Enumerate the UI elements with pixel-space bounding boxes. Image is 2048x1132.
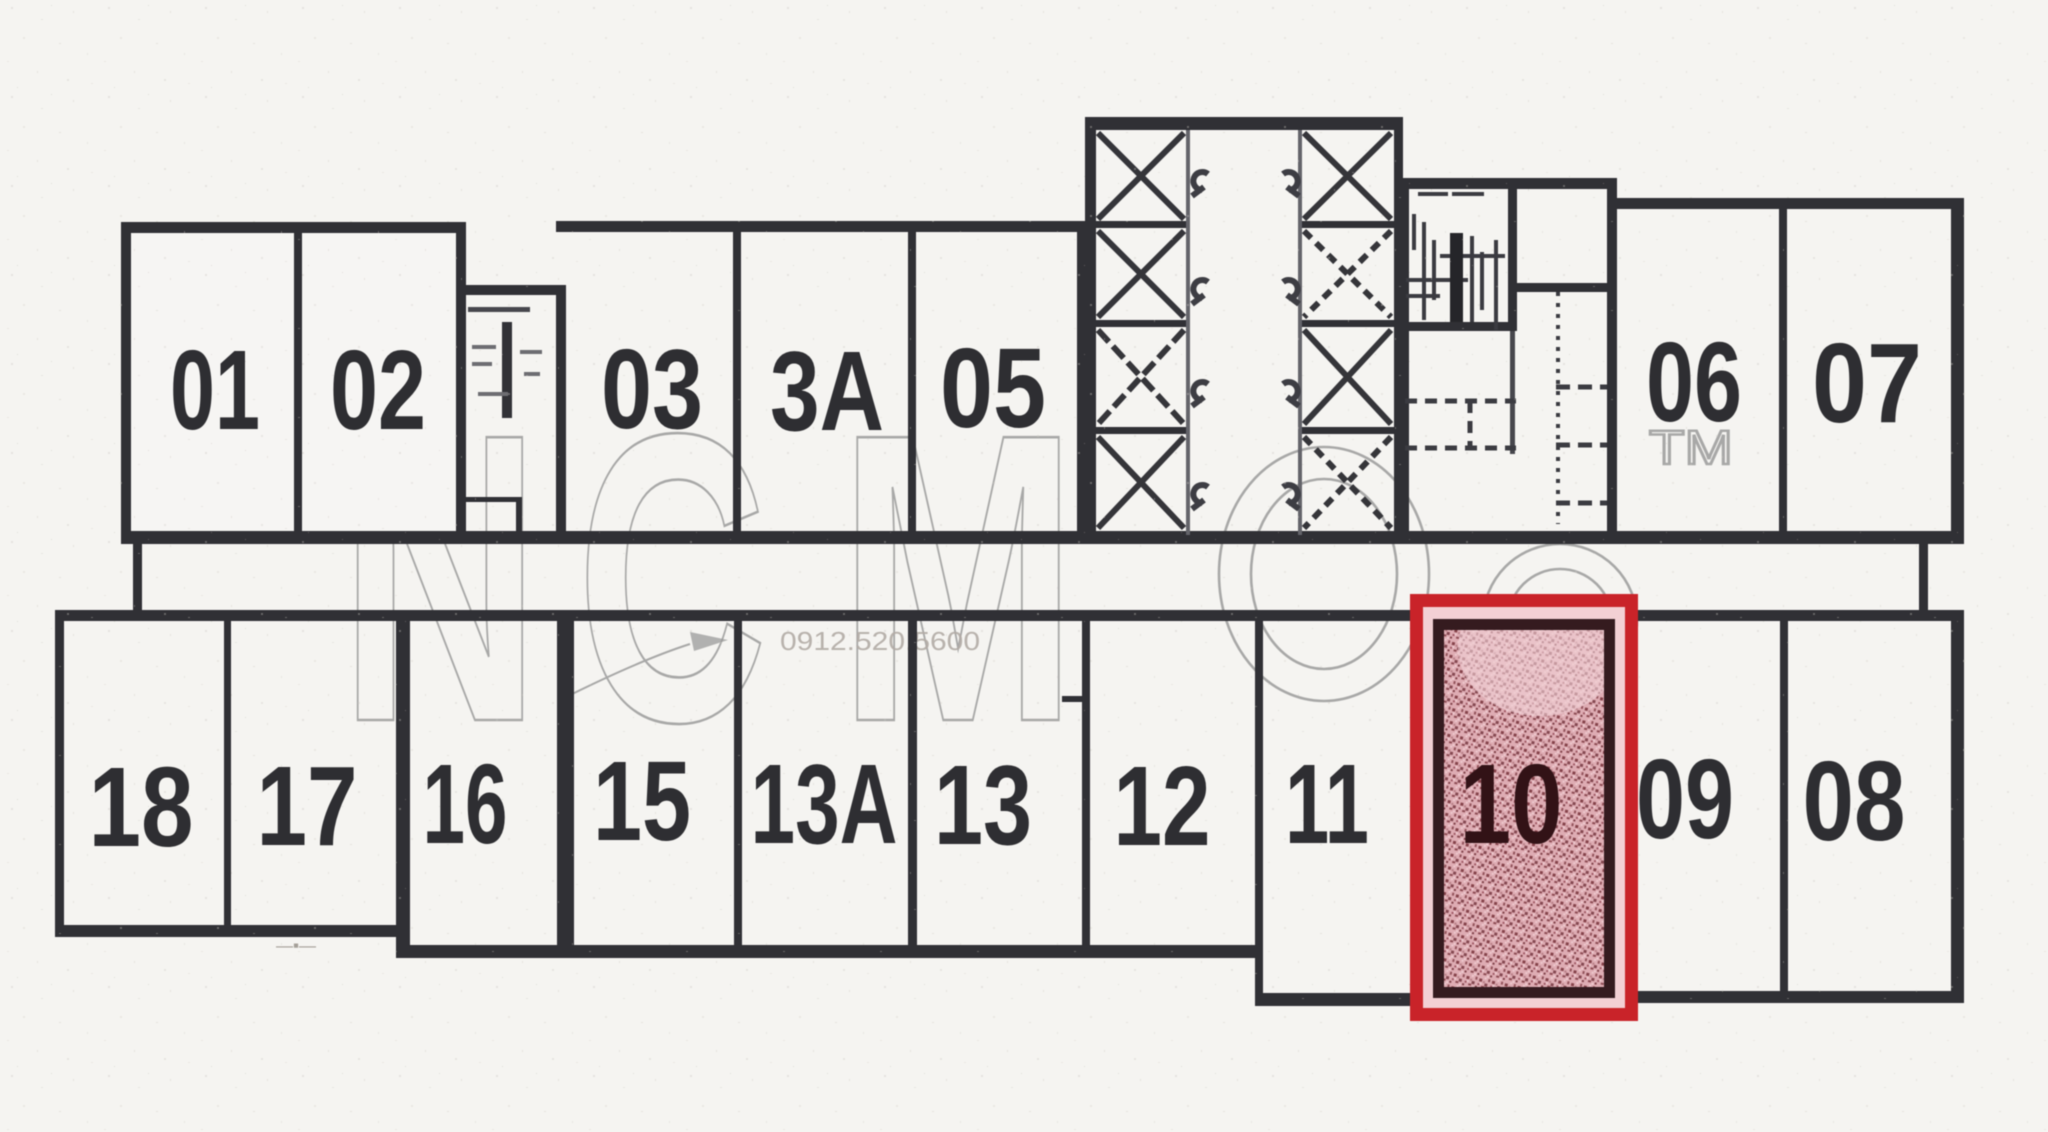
svg-text:10: 10: [1460, 741, 1563, 867]
svg-text:13A: 13A: [751, 741, 898, 867]
svg-text:03: 03: [601, 326, 703, 452]
svg-text:01: 01: [170, 327, 260, 453]
svg-text:05: 05: [940, 325, 1046, 451]
svg-text:18: 18: [89, 744, 194, 870]
svg-text:06: 06: [1646, 319, 1742, 445]
svg-text:12: 12: [1114, 743, 1211, 869]
svg-text:17: 17: [257, 743, 358, 869]
svg-text:08: 08: [1803, 738, 1906, 864]
svg-text:09: 09: [1636, 736, 1734, 862]
svg-text:13: 13: [934, 742, 1032, 868]
svg-text:16: 16: [423, 741, 508, 867]
svg-text:15: 15: [593, 738, 691, 864]
svg-text:11: 11: [1285, 741, 1369, 867]
svg-text:3A: 3A: [770, 328, 884, 454]
svg-text:02: 02: [330, 327, 426, 453]
svg-text:07: 07: [1812, 320, 1922, 446]
